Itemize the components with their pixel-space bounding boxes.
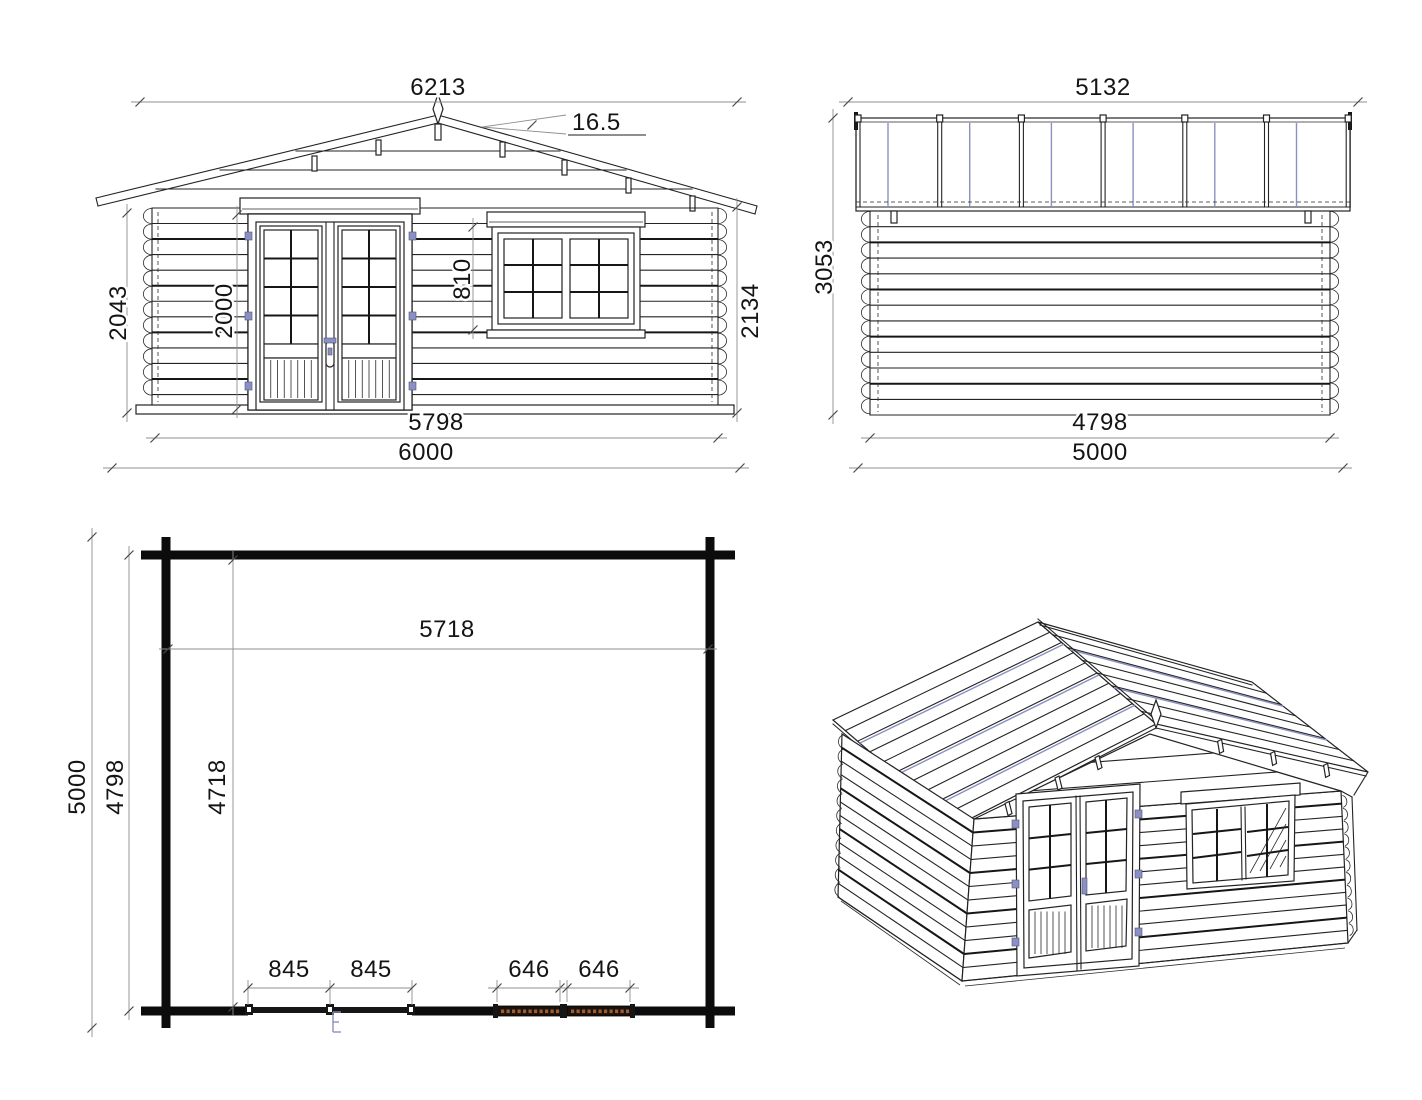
dim-overall-depth: 5000 — [1072, 439, 1127, 466]
perspective-drawing — [833, 619, 1368, 986]
dim-plan-interior-depth: 4718 — [204, 759, 231, 814]
dim-plan-overall-depth: 5000 — [64, 759, 91, 814]
dim-interior-width: 5718 — [419, 616, 474, 643]
dim-door-leaf-left: 845 — [268, 956, 310, 983]
dim-window-left: 646 — [508, 956, 550, 983]
front-elevation-view: 6213 16.5 2043 2000 810 2134 5798 6000 — [80, 68, 780, 498]
technical-drawing-sheet: 6213 16.5 2043 2000 810 2134 5798 6000 5… — [0, 0, 1422, 1100]
dim-wall-width: 5798 — [408, 409, 463, 436]
dim-wall-depth: 4798 — [1072, 409, 1127, 436]
dim-roof-depth: 5132 — [1075, 74, 1130, 101]
dim-overall-height: 2134 — [737, 283, 764, 338]
dim-eave-height: 2043 — [105, 285, 132, 340]
dim-side-height: 3053 — [811, 239, 838, 294]
dim-door-leaf-right: 845 — [350, 956, 392, 983]
dim-plan-wall-depth: 4798 — [102, 759, 129, 814]
side-elevation-view: 5132 3053 4798 5000 — [808, 68, 1408, 498]
dim-door-height: 2000 — [211, 283, 238, 338]
dim-overall-width: 6000 — [398, 439, 453, 466]
dim-window-right: 646 — [578, 956, 620, 983]
perspective-3d-view — [795, 580, 1422, 1010]
floor-plan-view: 5718 5000 4798 4718 845 845 646 646 — [60, 525, 760, 1085]
floor-plan-drawing — [88, 528, 736, 1037]
dim-roof-width: 6213 — [410, 74, 465, 101]
dim-roof-pitch: 16.5 — [572, 109, 621, 136]
dim-window-height: 810 — [449, 258, 476, 300]
